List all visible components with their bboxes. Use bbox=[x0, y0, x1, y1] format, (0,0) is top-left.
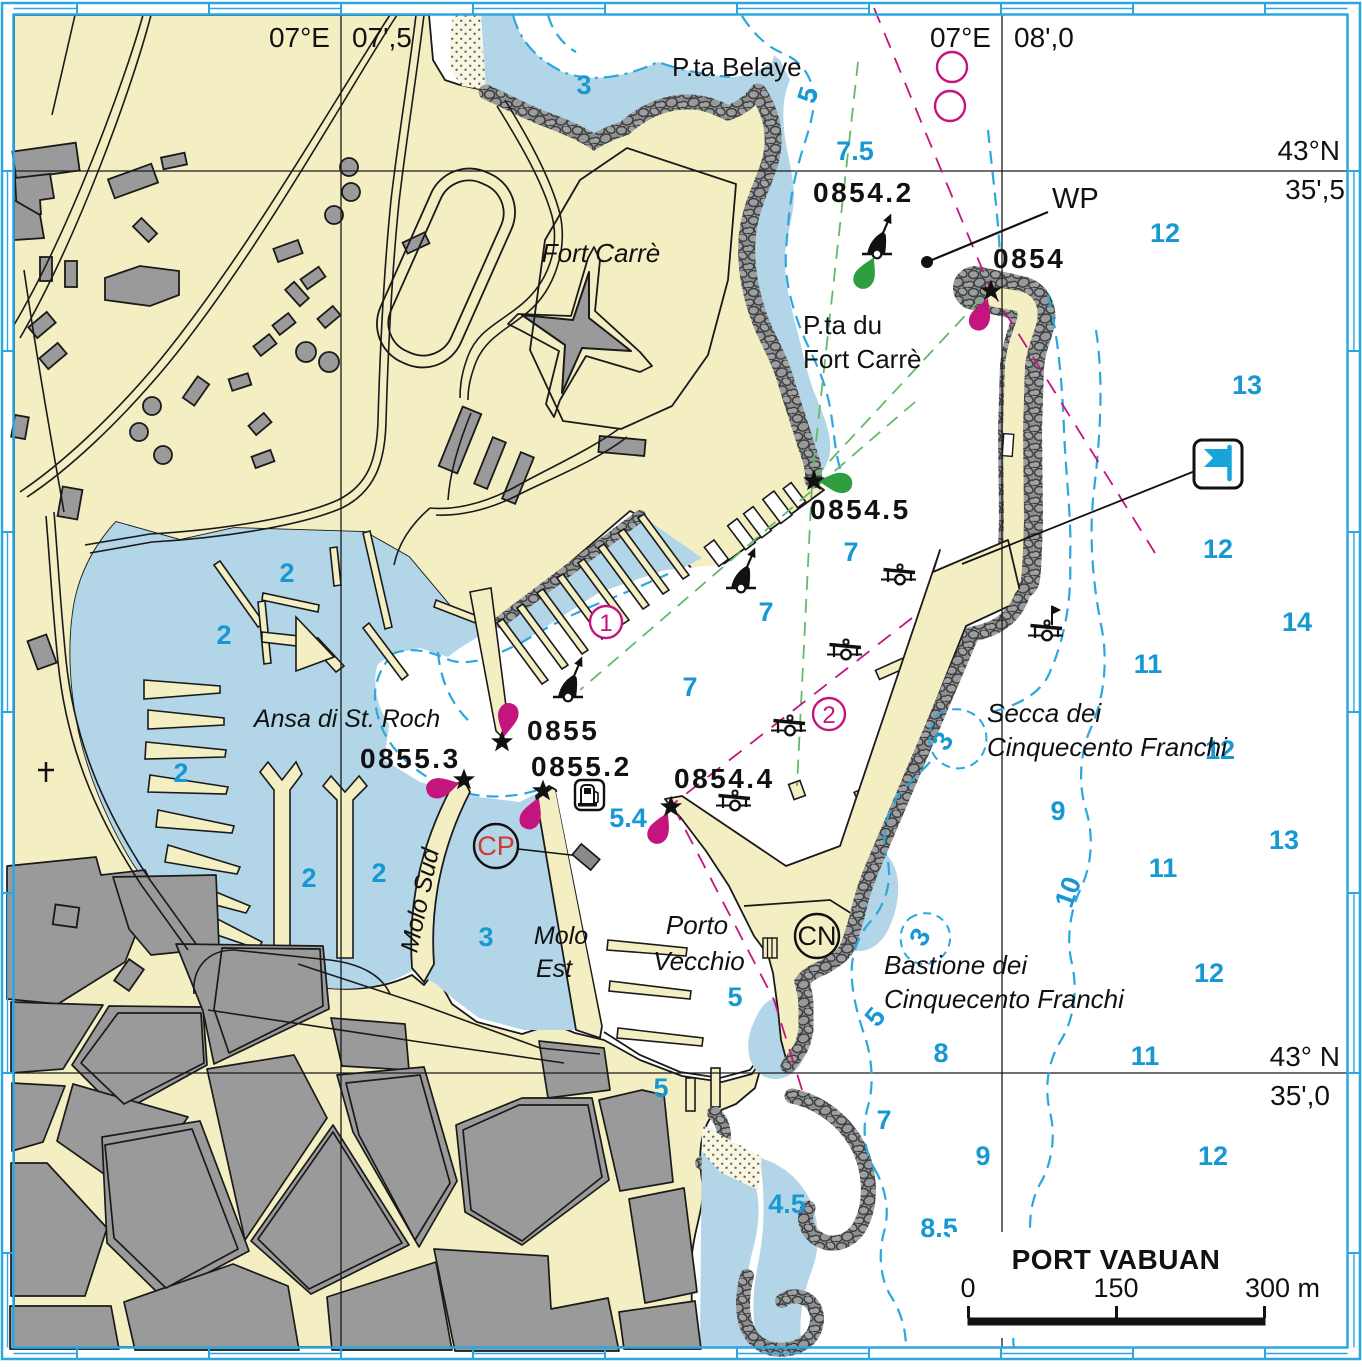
svg-text:0854.4: 0854.4 bbox=[674, 763, 775, 794]
svg-text:43°N: 43°N bbox=[1277, 135, 1340, 166]
svg-text:P.ta du: P.ta du bbox=[803, 310, 882, 340]
svg-text:WP: WP bbox=[1052, 183, 1099, 215]
svg-text:Cinquecento Franchi: Cinquecento Franchi bbox=[884, 984, 1125, 1014]
svg-text:35',5: 35',5 bbox=[1285, 174, 1345, 205]
svg-text:0: 0 bbox=[960, 1273, 975, 1303]
svg-text:0855.3: 0855.3 bbox=[360, 743, 461, 774]
svg-text:9: 9 bbox=[975, 1141, 990, 1171]
svg-text:Fort Carrè: Fort Carrè bbox=[542, 238, 660, 268]
svg-text:5: 5 bbox=[653, 1073, 668, 1103]
svg-text:5: 5 bbox=[727, 982, 742, 1012]
svg-text:2: 2 bbox=[173, 758, 188, 788]
svg-text:Molo: Molo bbox=[534, 922, 588, 950]
svg-text:0855.2: 0855.2 bbox=[531, 751, 632, 782]
svg-text:P.ta Belaye: P.ta Belaye bbox=[672, 52, 802, 82]
svg-text:1: 1 bbox=[599, 610, 612, 637]
svg-text:12: 12 bbox=[1203, 534, 1233, 564]
svg-text:12: 12 bbox=[1198, 1141, 1228, 1171]
svg-text:0854: 0854 bbox=[993, 243, 1065, 274]
svg-text:07°E: 07°E bbox=[930, 22, 991, 53]
svg-text:PORT VABUAN: PORT VABUAN bbox=[1012, 1244, 1221, 1275]
svg-text:08',0: 08',0 bbox=[1014, 22, 1074, 53]
svg-text:11: 11 bbox=[1131, 1041, 1160, 1071]
svg-text:8: 8 bbox=[933, 1038, 948, 1068]
svg-text:35',0: 35',0 bbox=[1270, 1080, 1330, 1111]
svg-text:4.5: 4.5 bbox=[768, 1189, 806, 1219]
svg-text:Bastione dei: Bastione dei bbox=[884, 950, 1028, 980]
svg-text:11: 11 bbox=[1134, 649, 1163, 679]
svg-text:2: 2 bbox=[216, 620, 231, 650]
svg-text:2: 2 bbox=[371, 858, 386, 888]
svg-text:14: 14 bbox=[1282, 607, 1312, 637]
svg-text:Fort Carrè: Fort Carrè bbox=[803, 344, 921, 374]
svg-text:7: 7 bbox=[876, 1105, 891, 1135]
svg-text:300 m: 300 m bbox=[1245, 1273, 1320, 1303]
svg-text:43° N: 43° N bbox=[1270, 1041, 1340, 1072]
svg-text:2: 2 bbox=[279, 558, 294, 588]
svg-text:13: 13 bbox=[1269, 825, 1299, 855]
svg-text:12: 12 bbox=[1150, 218, 1180, 248]
svg-text:Est: Est bbox=[536, 955, 573, 983]
svg-text:Porto: Porto bbox=[666, 910, 728, 940]
svg-text:7: 7 bbox=[843, 537, 858, 567]
svg-text:0854.5: 0854.5 bbox=[810, 494, 911, 525]
svg-text:CN: CN bbox=[798, 921, 837, 951]
svg-text:0855: 0855 bbox=[527, 715, 599, 746]
svg-text:7: 7 bbox=[758, 597, 773, 627]
svg-text:3: 3 bbox=[478, 922, 493, 952]
svg-text:Secca dei: Secca dei bbox=[987, 698, 1102, 728]
svg-text:0854.2: 0854.2 bbox=[813, 177, 914, 208]
svg-text:13: 13 bbox=[1232, 370, 1262, 400]
svg-text:Ansa di St. Roch: Ansa di St. Roch bbox=[252, 705, 440, 733]
svg-text:2: 2 bbox=[301, 863, 316, 893]
svg-text:150: 150 bbox=[1093, 1273, 1138, 1303]
svg-text:CP: CP bbox=[477, 831, 515, 861]
svg-text:Vecchio: Vecchio bbox=[653, 946, 745, 976]
svg-text:Cinquecento Franchi: Cinquecento Franchi bbox=[987, 732, 1228, 762]
svg-text:3: 3 bbox=[576, 70, 591, 100]
svg-text:7: 7 bbox=[682, 672, 697, 702]
svg-text:9: 9 bbox=[1050, 796, 1065, 826]
svg-text:2: 2 bbox=[822, 702, 835, 729]
svg-text:07',5: 07',5 bbox=[352, 22, 412, 53]
svg-text:12: 12 bbox=[1194, 958, 1224, 988]
svg-text:11: 11 bbox=[1149, 853, 1178, 883]
svg-text:07°E: 07°E bbox=[269, 22, 330, 53]
svg-text:5.4: 5.4 bbox=[609, 803, 647, 833]
svg-text:7.5: 7.5 bbox=[836, 136, 874, 166]
